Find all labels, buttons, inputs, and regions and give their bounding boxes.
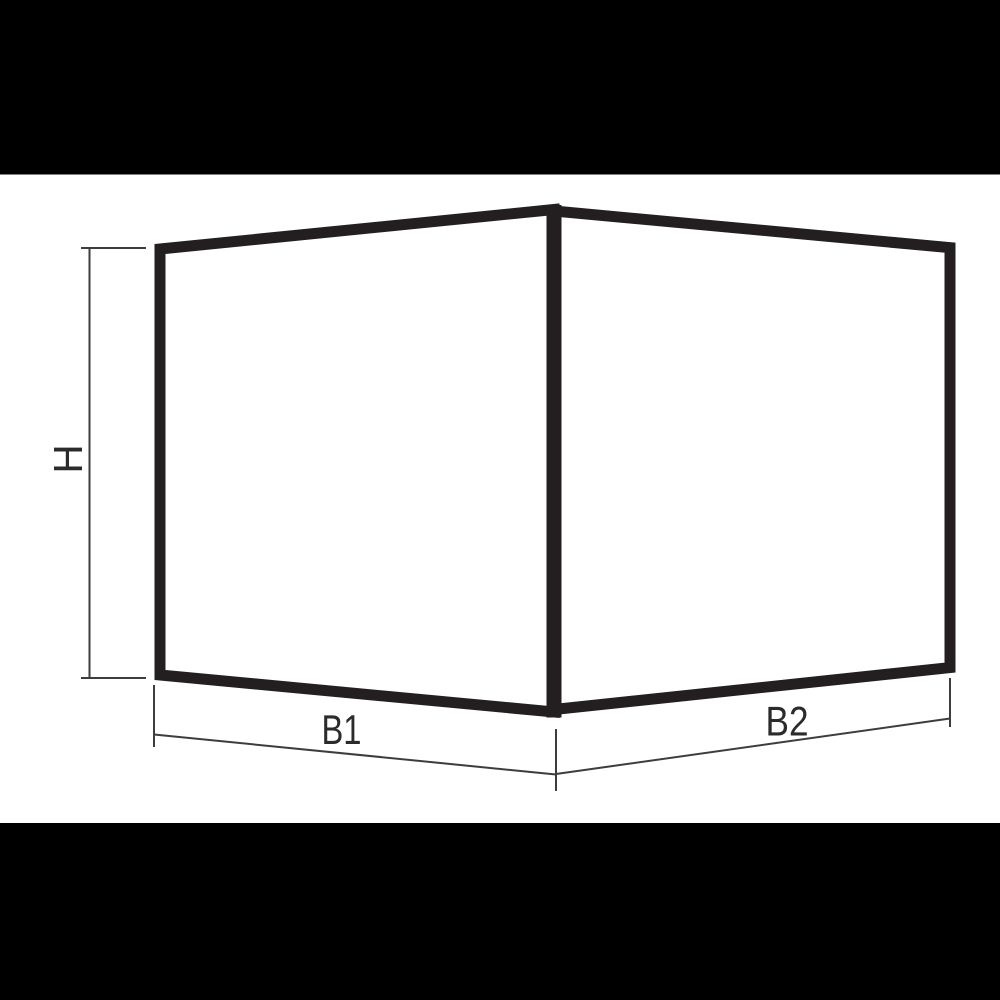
svg-text:B2: B2: [766, 698, 809, 745]
svg-text:H: H: [45, 444, 91, 473]
svg-text:B1: B1: [322, 706, 362, 753]
